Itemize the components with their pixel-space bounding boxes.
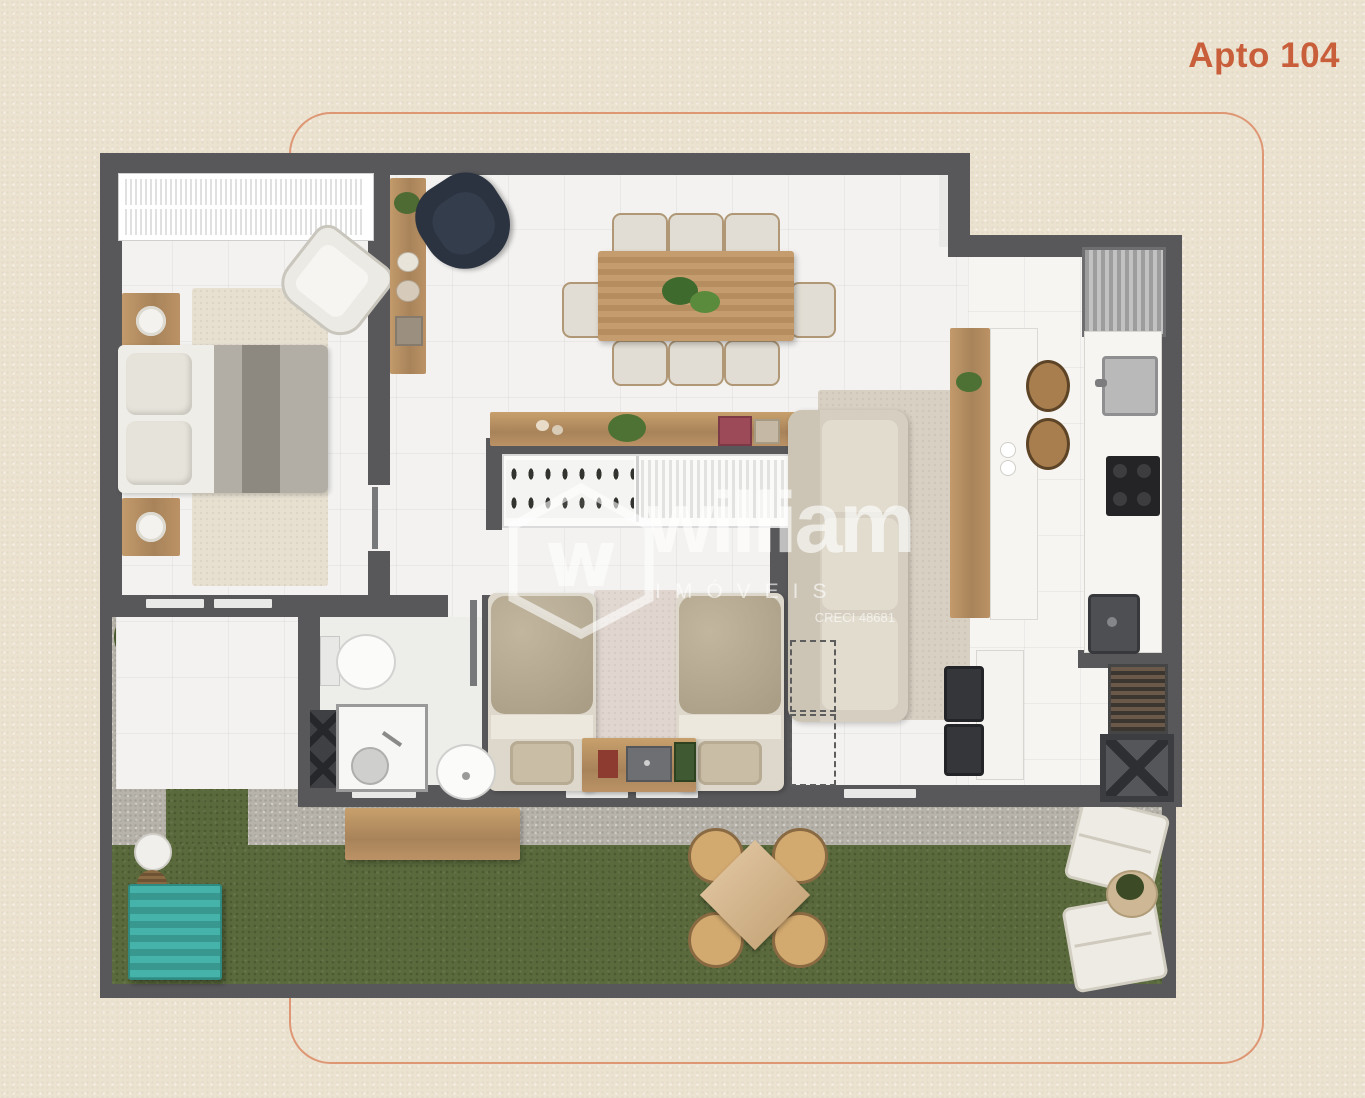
closet-divider (636, 456, 639, 522)
foot-bench (698, 741, 762, 785)
decor-dot (644, 760, 650, 766)
living-sliding-door (844, 789, 916, 798)
centerpiece-plant (690, 291, 720, 313)
bed-sheet (491, 715, 593, 739)
bedroom1-sliding-door (214, 599, 272, 608)
projection-dashed-outline (790, 714, 836, 786)
table-lamp (136, 306, 166, 336)
bed-pillow (126, 421, 192, 485)
sofa-cushion (822, 420, 898, 512)
wall-top (100, 153, 970, 175)
decor-frame (754, 419, 780, 444)
decor-plant (608, 414, 646, 442)
closet-hanging-clothes (641, 460, 785, 518)
round-washbasin (436, 744, 496, 800)
bed-runner (242, 345, 280, 493)
toilet-bowl (336, 634, 396, 690)
burner (1113, 464, 1127, 478)
decor-tray (626, 746, 672, 782)
wall-closet-left (486, 438, 502, 530)
armchair-seat (292, 241, 372, 321)
bed-sheet (679, 715, 781, 739)
island-plate (1000, 460, 1016, 476)
entry-door (939, 175, 948, 247)
wall-bathroom-top (298, 595, 448, 617)
garden-bench (345, 808, 520, 860)
dining-chair (668, 340, 724, 386)
bathroom-door-leaf (470, 600, 477, 686)
faucet (1107, 617, 1117, 627)
refrigerator (1082, 247, 1166, 337)
dining-chair (612, 340, 668, 386)
foot-bench (510, 741, 574, 785)
shower-box (336, 704, 428, 792)
nightstand (122, 293, 180, 349)
sofa-cushion (822, 518, 898, 610)
service-stool (944, 666, 984, 722)
bed-duvet (491, 596, 593, 714)
garden-lawn (108, 845, 1166, 989)
utility-shaft (1100, 734, 1174, 802)
dining-chair (724, 340, 780, 386)
garden-fence-left (100, 608, 112, 998)
wardrobe-rail (125, 179, 365, 205)
decor-frame (718, 416, 752, 446)
nightstand (122, 498, 180, 556)
floorplan-page: { "title": { "text": "Apto 104", "color"… (0, 0, 1365, 1098)
table-lamp (136, 512, 166, 542)
service-stool (944, 724, 984, 776)
drying-rack (1108, 664, 1168, 734)
bed-duvet (679, 596, 781, 714)
accent-armchair-seat (424, 183, 504, 263)
dining-table (598, 251, 794, 341)
burner (1137, 492, 1151, 506)
shower-handle (382, 731, 402, 747)
burner (1113, 492, 1127, 506)
laundry-sink (1088, 594, 1140, 654)
kitchen-sink (1102, 356, 1158, 416)
bedroom1-door-leaf (372, 487, 378, 549)
island-plate (1000, 442, 1016, 458)
single-bed (488, 593, 596, 791)
shared-nightstand (582, 738, 696, 792)
dining-chair (790, 282, 836, 338)
decor-vases (397, 252, 419, 272)
wall-bedroom1-bottom (100, 595, 320, 617)
closet-shoe-shelf (506, 460, 634, 518)
decor-item (552, 425, 563, 435)
bed-pillow (126, 353, 192, 415)
garden-storage-chest (128, 884, 222, 980)
shower-drain-head (351, 747, 389, 785)
page-title: Apto 104 (1090, 36, 1340, 76)
decor-frame (674, 742, 696, 782)
decor-item (536, 420, 549, 431)
faucet (1095, 379, 1107, 387)
bar-stool (1026, 360, 1070, 412)
decor-book (598, 750, 618, 778)
bathroom-storage-rack (310, 710, 336, 788)
closet-unit (502, 454, 792, 528)
bar-stool (1026, 418, 1070, 470)
decor-bowl (396, 280, 420, 302)
decor-frames (395, 316, 423, 346)
cooktop (1106, 456, 1160, 516)
double-bed (118, 345, 328, 493)
bedroom1-sliding-door (146, 599, 204, 608)
planter-plant (1116, 874, 1144, 900)
projection-dashed-outline (790, 640, 836, 712)
garden-fence-bottom (100, 984, 1176, 998)
basin-drain (462, 772, 470, 780)
garden-side-table (134, 833, 172, 871)
burner (1137, 464, 1151, 478)
island-plant (956, 372, 982, 392)
